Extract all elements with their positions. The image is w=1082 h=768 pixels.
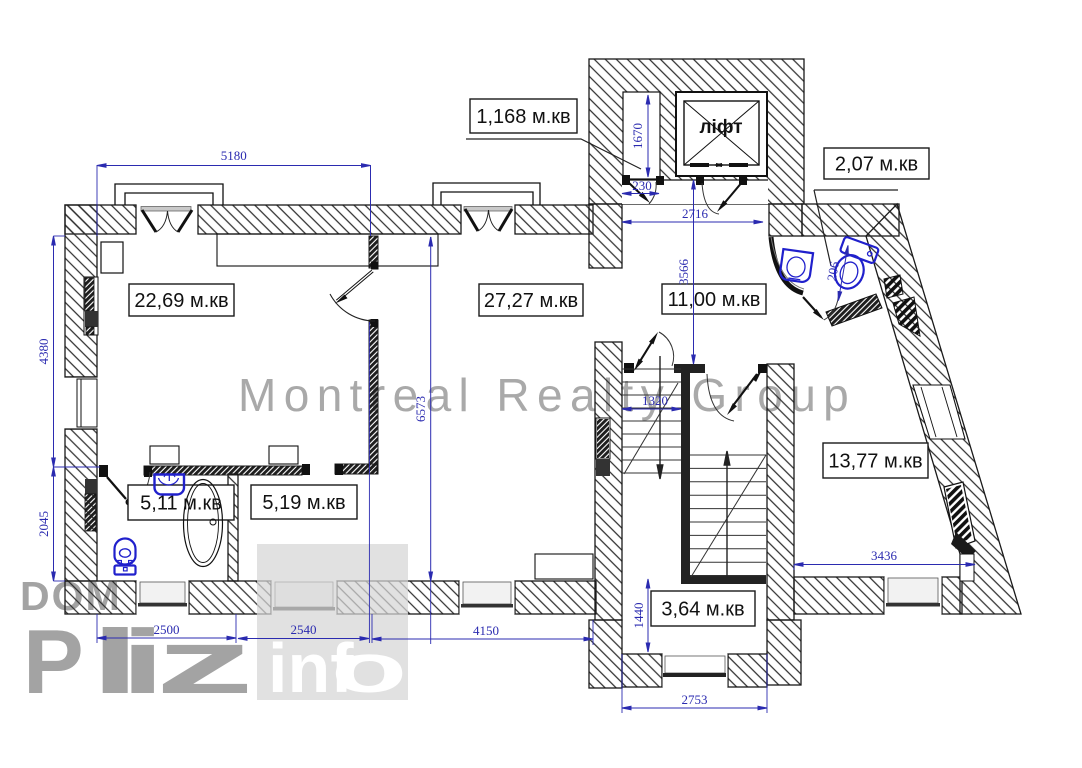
svg-text:4380: 4380 [36,339,51,365]
svg-text:13,77 м.кв: 13,77 м.кв [828,451,922,473]
svg-text:3436: 3436 [871,548,898,563]
svg-text:1670: 1670 [630,123,645,149]
svg-text:2753: 2753 [682,692,708,707]
svg-text:2500: 2500 [154,622,180,637]
svg-text:1440: 1440 [631,603,646,629]
svg-text:5,19 м.кв: 5,19 м.кв [262,492,345,514]
svg-text:ліфт: ліфт [699,117,742,138]
svg-text:P: P [23,612,84,713]
svg-text:1,168 м.кв: 1,168 м.кв [476,106,570,128]
svg-text:27,27 м.кв: 27,27 м.кв [484,290,578,312]
svg-text:3566: 3566 [676,259,691,286]
svg-text:11,00 м.кв: 11,00 м.кв [668,289,761,311]
svg-text:2716: 2716 [682,206,709,221]
svg-text:6573: 6573 [413,396,428,422]
svg-text:5180: 5180 [221,148,247,163]
svg-text:4150: 4150 [473,623,499,638]
svg-text:1320: 1320 [642,393,668,408]
svg-text:22,69 м.кв: 22,69 м.кв [134,290,228,312]
svg-text:230: 230 [632,178,652,193]
svg-text:5,11 м.кв: 5,11 м.кв [140,493,222,515]
svg-text:3,64 м.кв: 3,64 м.кв [661,599,744,621]
svg-text:2,07 м.кв: 2,07 м.кв [835,154,918,176]
svg-text:Montreal Realty Group: Montreal Realty Group [238,369,856,421]
svg-text:2045: 2045 [36,511,51,537]
svg-text:2540: 2540 [291,622,317,637]
